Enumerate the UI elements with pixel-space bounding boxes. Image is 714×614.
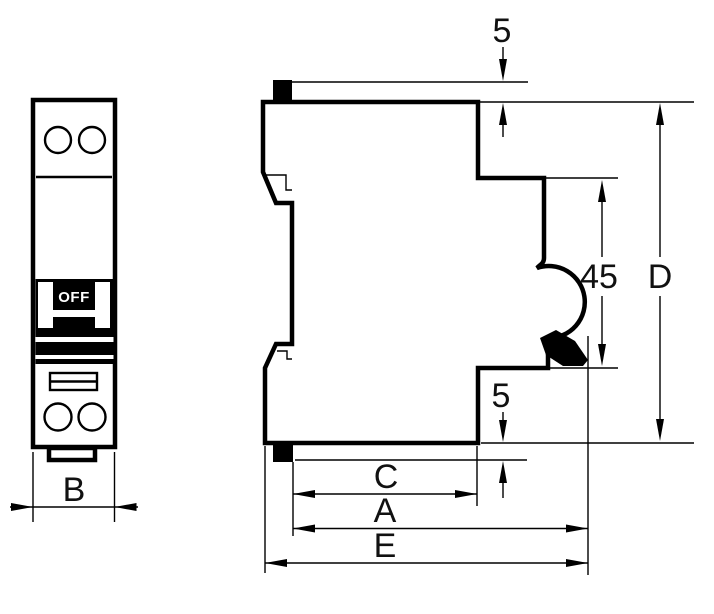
breaker-dimension-drawing: OFF B [0, 0, 714, 614]
toggle-notch-right [95, 282, 110, 328]
dim-c-arrow-right [455, 490, 477, 498]
dim-b-label: B [63, 471, 86, 509]
dim-45-arrow-down [598, 344, 606, 366]
dim-5bot-arrow-down [499, 420, 507, 442]
dim-a-arrow-left [293, 525, 315, 533]
dimension-d: D [648, 103, 673, 441]
bottom-mounting-tab [49, 448, 95, 460]
dim-b-arrow-left [11, 503, 33, 511]
dimension-a: A [293, 492, 588, 533]
front-stripe-1 [36, 337, 114, 342]
front-body-outline [33, 100, 115, 447]
dimension-b: B [10, 452, 138, 522]
dim-45-arrow-up [598, 180, 606, 202]
dim-e-label: E [374, 527, 397, 565]
toggle-off-label: OFF [58, 289, 90, 306]
dim-b-arrow-right [115, 503, 137, 511]
dim-5top-arrow-down [499, 59, 507, 81]
technical-drawing-canvas: OFF B [0, 0, 714, 614]
dim-c-arrow-left [293, 490, 315, 498]
dim-d-arrow-down [656, 419, 664, 441]
dim-5top-label: 5 [493, 12, 512, 50]
dim-d-label: D [648, 258, 673, 296]
dim-5bot-arrow-up [499, 461, 507, 483]
side-view: 5 45 D 5 [263, 12, 694, 575]
dim-5top-arrow-up [499, 103, 507, 125]
dimension-e: E [265, 527, 588, 567]
front-stripe-2 [36, 355, 114, 359]
top-clip-protrusion [273, 80, 292, 104]
toggle-handle-gap [53, 310, 95, 317]
dimension-5-bottom: 5 [492, 377, 511, 498]
dim-d-arrow-up [656, 103, 664, 125]
dim-e-arrow-left [265, 559, 287, 567]
toggle-notch-left [38, 282, 53, 328]
dim-a-label: A [374, 492, 397, 530]
side-profile-outline [263, 102, 585, 443]
dim-a-arrow-right [566, 525, 588, 533]
front-view: OFF B [10, 100, 138, 522]
dim-c-label: C [374, 458, 399, 496]
dim-45-label: 45 [580, 258, 618, 296]
dimension-45: 45 [580, 180, 618, 366]
dimension-5-top: 5 [493, 12, 512, 137]
dim-e-arrow-right [566, 559, 588, 567]
dim-5bot-label: 5 [492, 377, 511, 415]
bottom-clip-protrusion [273, 441, 293, 462]
